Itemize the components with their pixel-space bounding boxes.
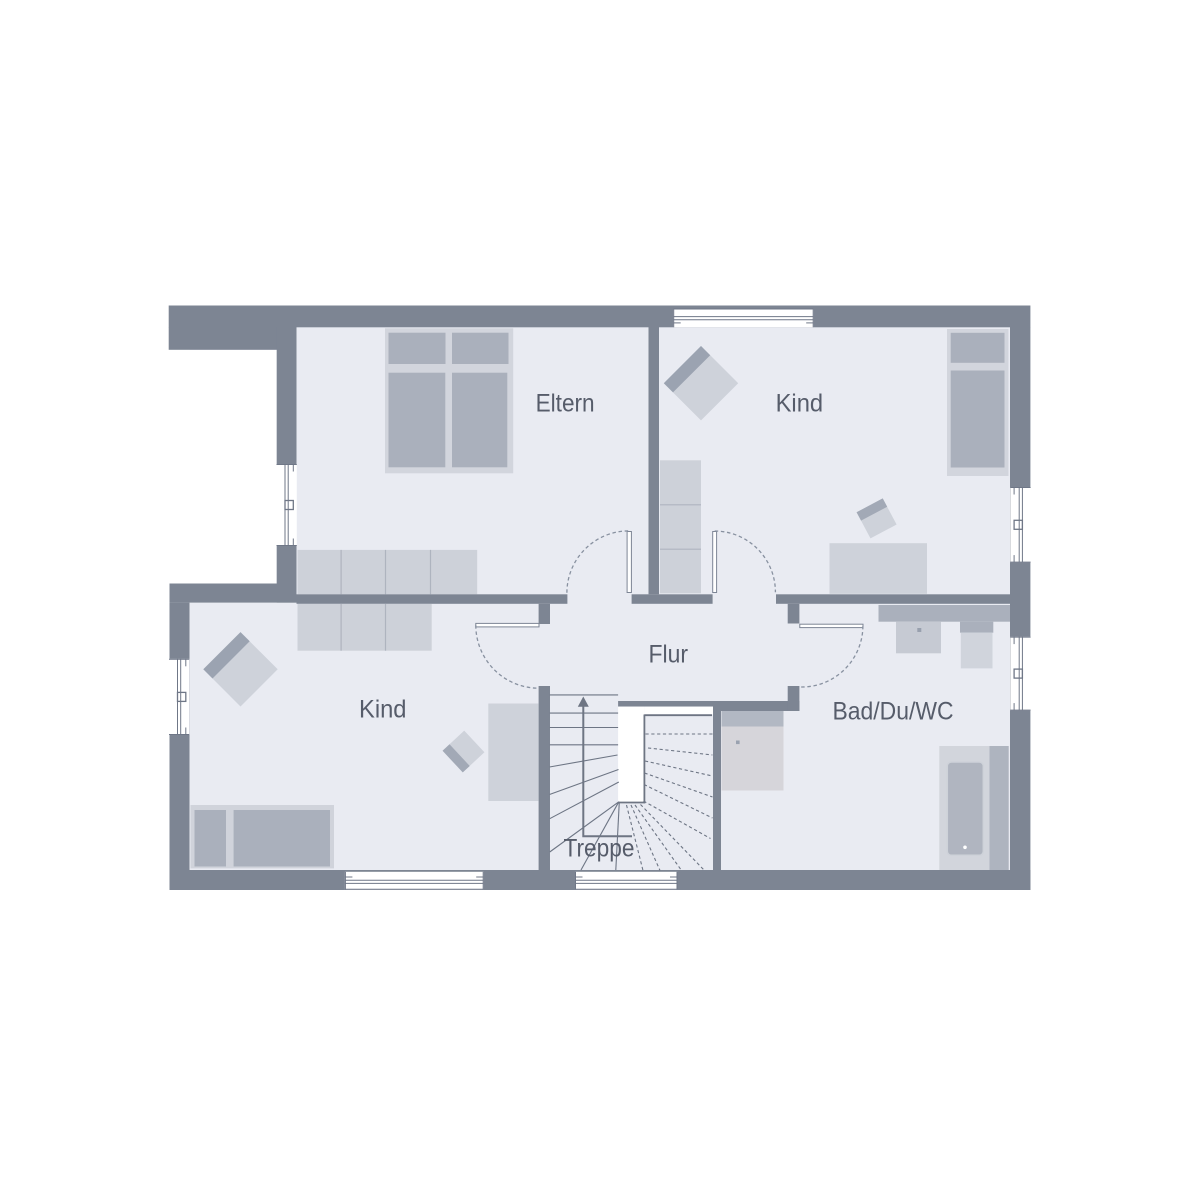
svg-text:Kind: Kind [776,389,824,417]
svg-text:Treppe: Treppe [564,834,635,862]
svg-text:Kind: Kind [359,695,407,723]
svg-text:Flur: Flur [649,640,689,668]
svg-text:Eltern: Eltern [536,389,595,417]
svg-text:Bad/Du/WC: Bad/Du/WC [833,698,954,726]
